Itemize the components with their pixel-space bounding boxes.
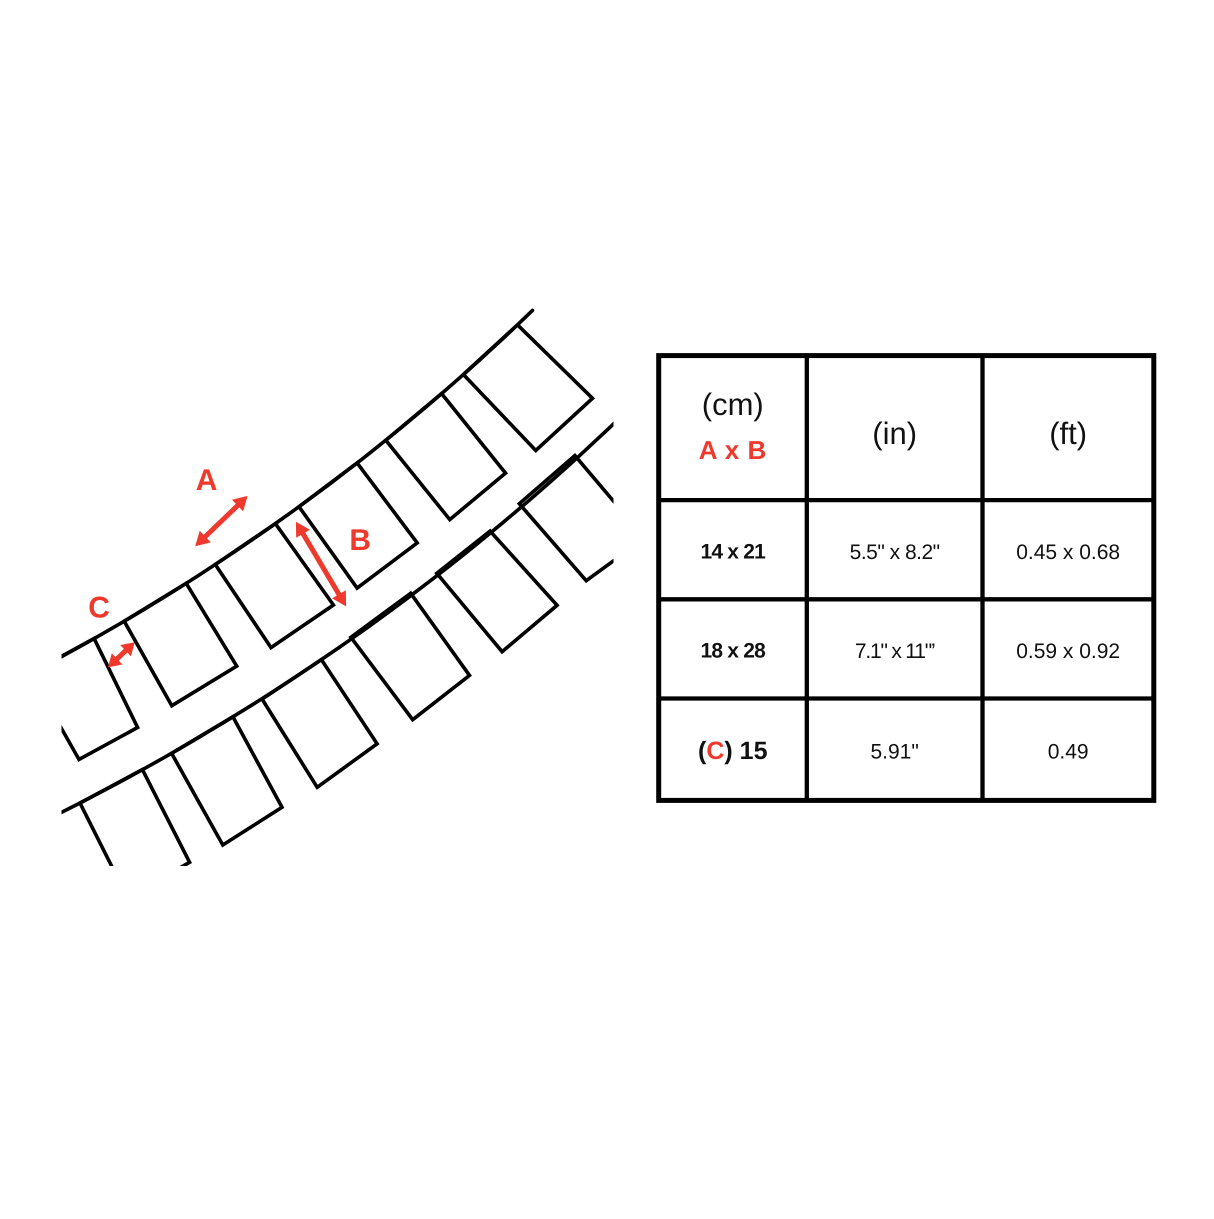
svg-text:(C) 15: (C) 15: [698, 737, 768, 765]
svg-text:(ft): (ft): [1049, 416, 1087, 451]
svg-text:C: C: [88, 592, 110, 625]
svg-text:(in): (in): [872, 416, 917, 451]
svg-text:5.91": 5.91": [870, 740, 918, 763]
svg-text:14 x 21: 14 x 21: [701, 541, 767, 564]
svg-text:A: A: [196, 464, 218, 497]
svg-text:5.5" x 8.2": 5.5" x 8.2": [850, 541, 940, 564]
svg-text:A x B: A x B: [699, 435, 767, 465]
svg-text:0.45 x 0.68: 0.45 x 0.68: [1016, 541, 1120, 564]
svg-text:18 x 28: 18 x 28: [701, 640, 767, 663]
svg-text:0.49: 0.49: [1048, 740, 1089, 763]
svg-text:7.1" x 11"’: 7.1" x 11"’: [855, 640, 935, 663]
svg-text:0.59 x 0.92: 0.59 x 0.92: [1016, 640, 1120, 663]
svg-text:(cm): (cm): [702, 387, 764, 422]
svg-text:B: B: [349, 524, 371, 557]
